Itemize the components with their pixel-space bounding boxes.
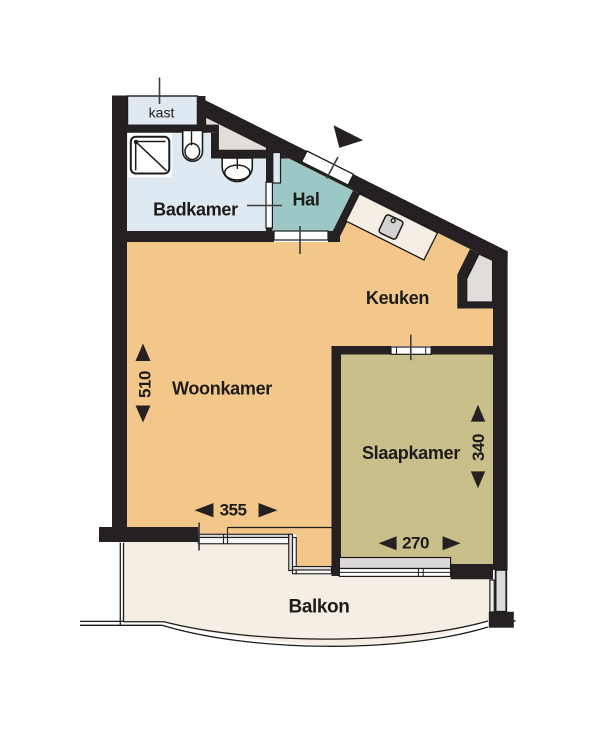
svg-text:Balkon: Balkon	[289, 597, 350, 618]
svg-text:Hal: Hal	[292, 190, 319, 210]
svg-text:Keuken: Keuken	[366, 288, 429, 308]
svg-text:Slaapkamer: Slaapkamer	[362, 443, 460, 463]
svg-text:355: 355	[220, 501, 247, 520]
svg-text:510: 510	[136, 371, 155, 398]
svg-text:Badkamer: Badkamer	[153, 200, 238, 220]
svg-text:340: 340	[469, 434, 488, 461]
svg-text:Woonkamer: Woonkamer	[172, 379, 272, 399]
svg-text:270: 270	[402, 534, 429, 553]
svg-text:kast: kast	[149, 105, 175, 121]
